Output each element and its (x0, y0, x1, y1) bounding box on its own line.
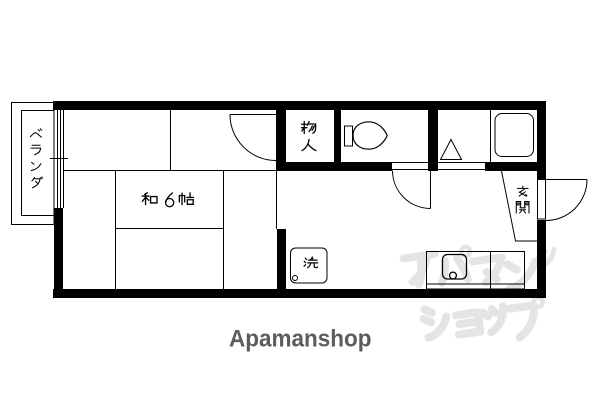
svg-text:Apamanshop: Apamanshop (229, 326, 372, 353)
